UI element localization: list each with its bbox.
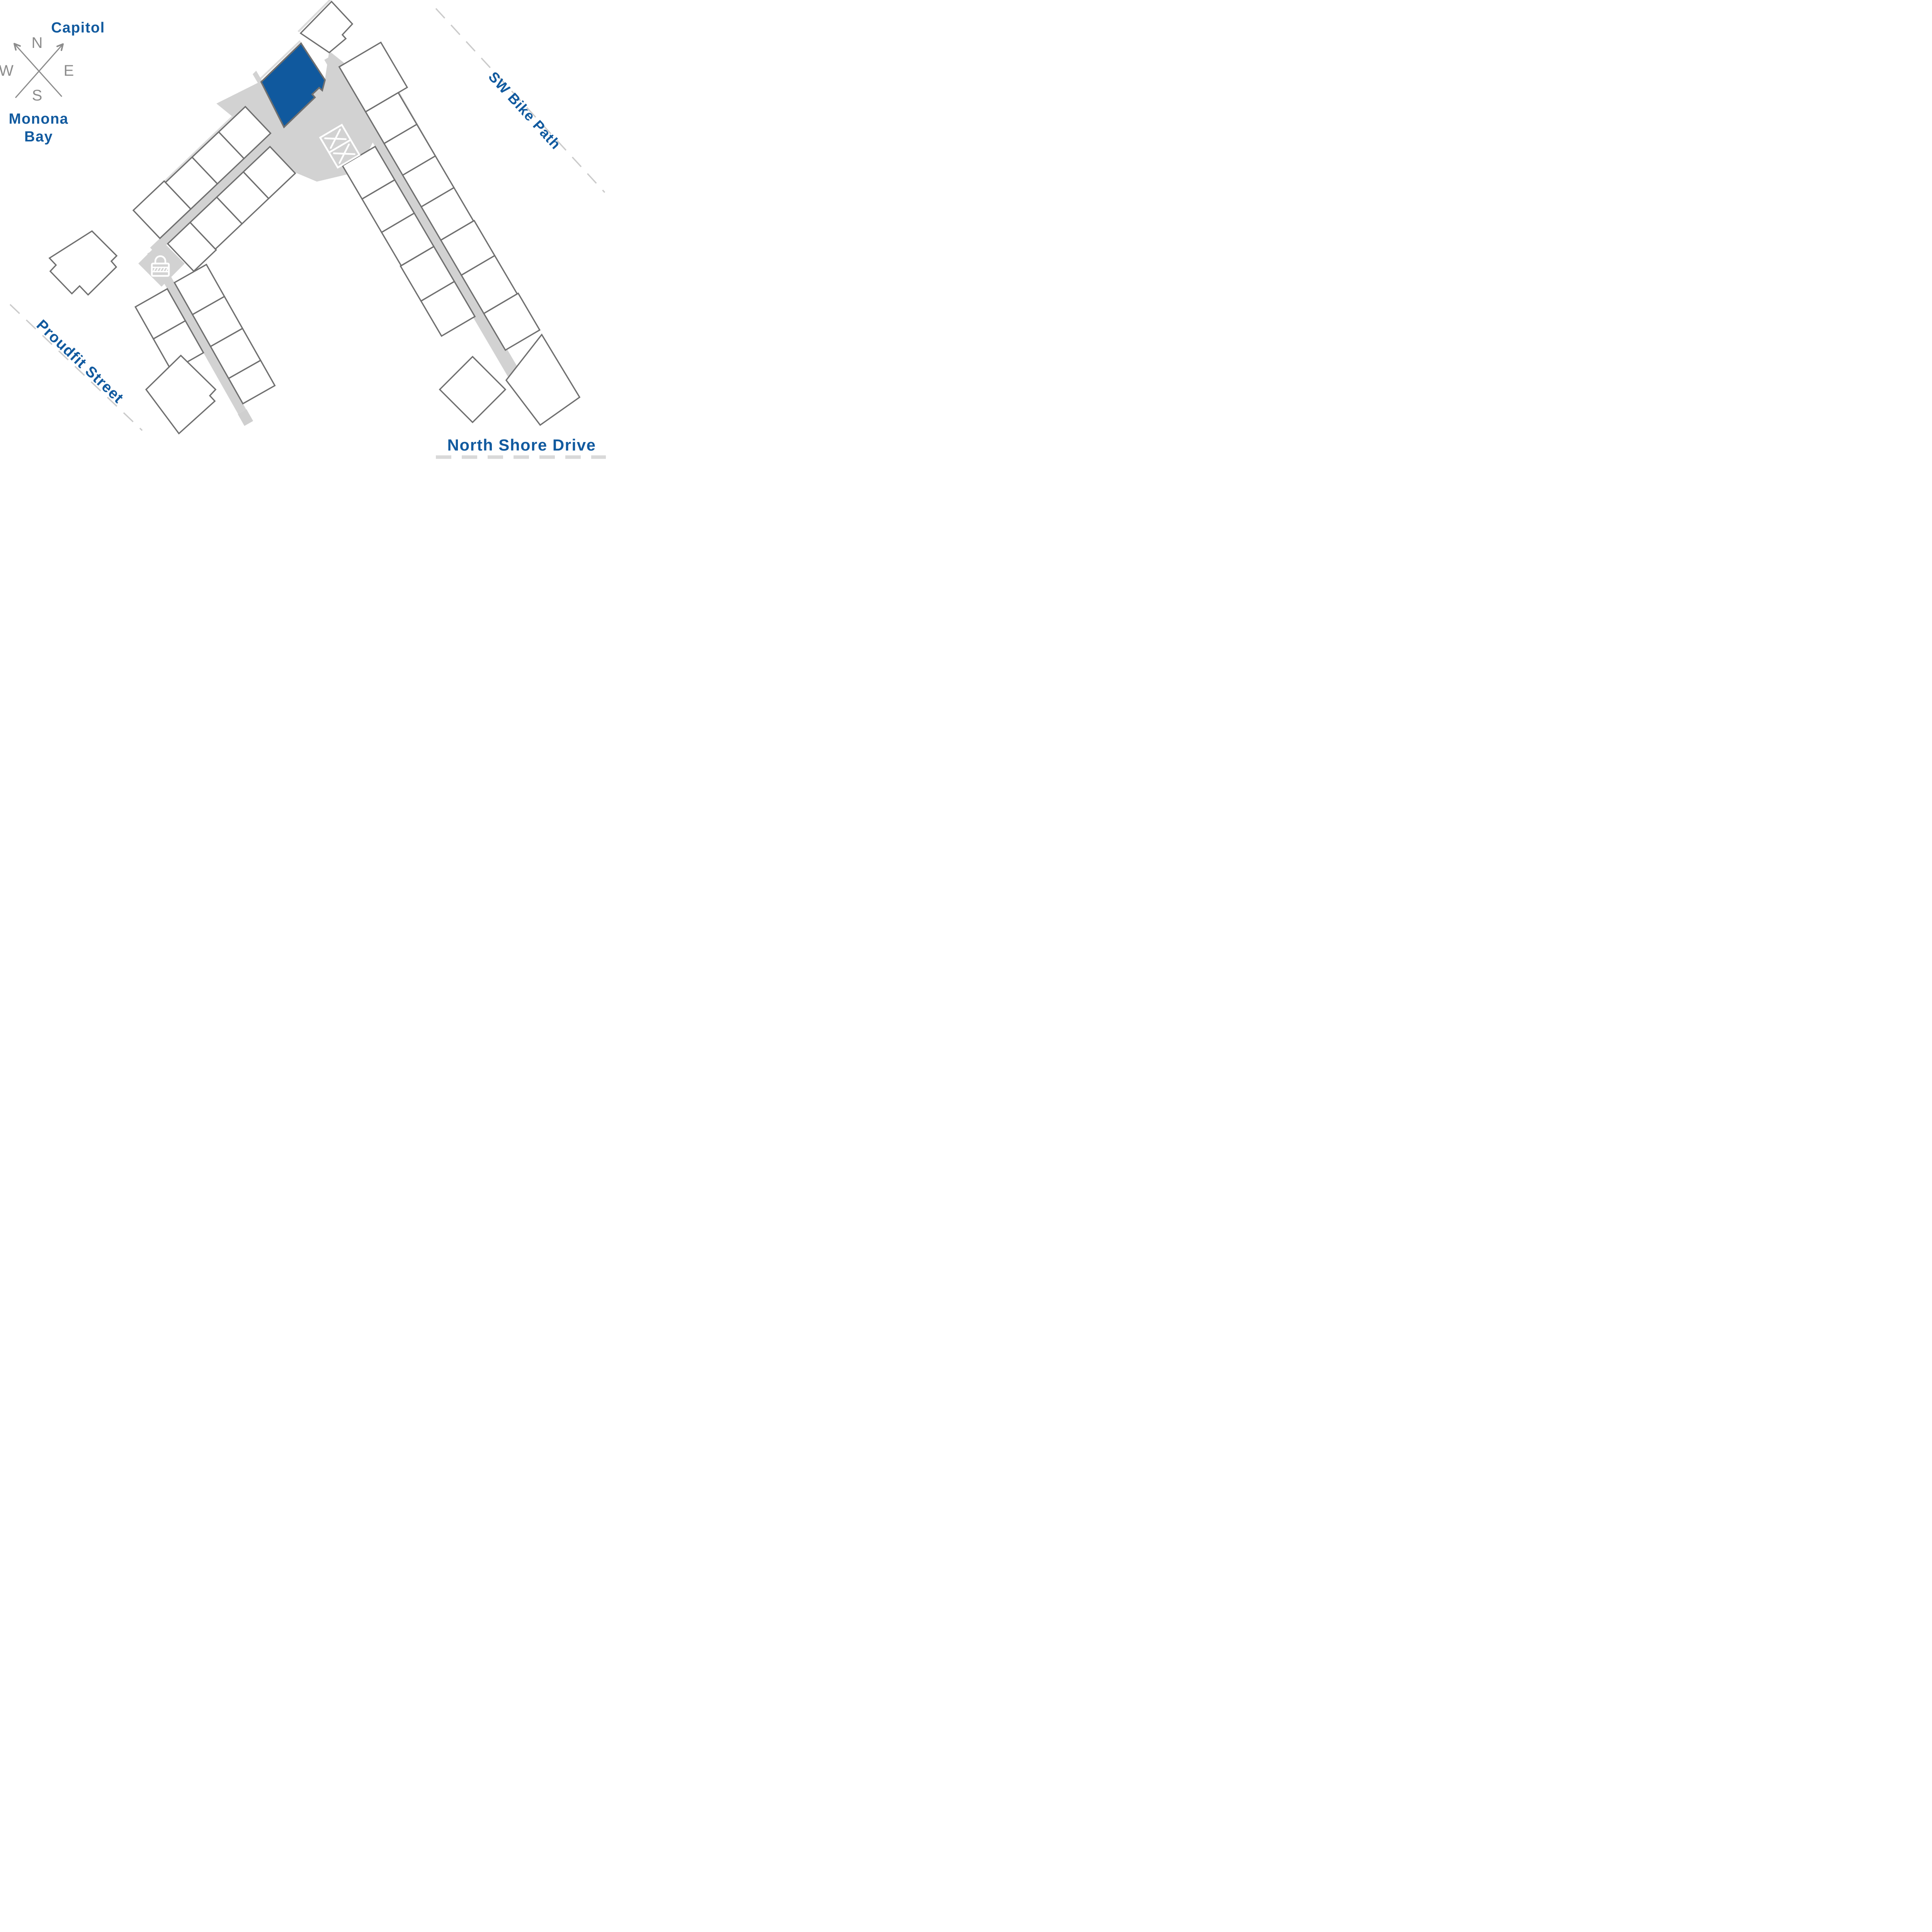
south-corner-unit: [146, 355, 216, 434]
southeast-diamond-unit: [440, 357, 505, 422]
label-sw-bike-path: SW Bike Path: [485, 69, 564, 153]
compass-south: S: [32, 87, 43, 104]
label-monona-line1: Monona: [9, 111, 69, 127]
compass-rose: N W E S: [0, 34, 74, 104]
site-plan-map: N W E S Capitol Monona Bay SW Bike Path …: [0, 0, 606, 459]
label-capitol: Capitol: [51, 20, 105, 36]
top-corner-unit: [301, 2, 352, 53]
compass-west: W: [0, 62, 14, 79]
compass-north: N: [32, 34, 43, 51]
elevator-x-icon: [334, 153, 355, 154]
label-proudfit-street: Proudfit Street: [33, 316, 127, 406]
compass-east: E: [64, 62, 74, 79]
label-north-shore-drive: North Shore Drive: [447, 436, 596, 454]
site-map-page: N W E S Capitol Monona Bay SW Bike Path …: [0, 0, 606, 459]
elevator-x-icon: [325, 138, 346, 139]
southeast-end-unit: [506, 335, 580, 425]
west-corner-unit: [49, 231, 117, 295]
label-monona-line2: Bay: [24, 129, 53, 145]
